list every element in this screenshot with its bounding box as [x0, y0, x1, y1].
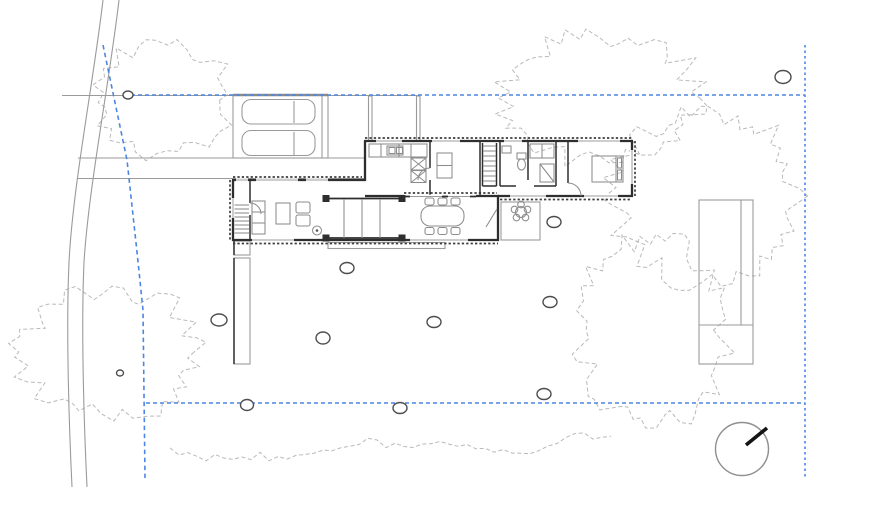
door-swing-bedroom — [568, 183, 581, 196]
kitchen-sink-bowl-1 — [389, 148, 395, 154]
tree-canopy-east-lower — [572, 233, 734, 428]
garden-wall — [234, 258, 250, 364]
tree-marker-2 — [775, 71, 791, 84]
armchair-2 — [296, 215, 310, 226]
bed-pillow-2 — [618, 170, 622, 180]
car-2 — [242, 131, 315, 156]
site-plan-drawing — [0, 0, 882, 526]
dining-chair-2 — [438, 198, 447, 205]
dining-table — [421, 206, 464, 226]
bed — [592, 156, 623, 182]
deck-post-se — [399, 235, 406, 242]
dining-chair-5 — [438, 228, 447, 235]
patio-door-leaf — [486, 209, 497, 227]
tree-canopy-north — [494, 29, 707, 167]
tree-line-south — [170, 433, 611, 461]
north-arrow-needle — [746, 428, 767, 445]
tree-marker-10 — [393, 403, 407, 414]
fireplace-flue — [316, 229, 319, 232]
deck-post-nw — [323, 195, 330, 202]
patio-chair-2 — [524, 206, 531, 213]
dining-chair-6 — [451, 228, 460, 235]
dining-chair-1 — [425, 198, 434, 205]
trellis-post-east — [417, 96, 421, 141]
coffee-table — [276, 203, 290, 224]
deck-post-ne — [399, 195, 406, 202]
toilet-tank — [517, 153, 526, 159]
tree-marker-12 — [117, 370, 124, 376]
car-1 — [242, 100, 315, 125]
site-plan-viewport — [0, 0, 882, 526]
tree-marker-11 — [537, 389, 551, 400]
dining-chair-3 — [451, 198, 460, 205]
tree-marker-8 — [547, 217, 561, 228]
tree-canopy-east-upper — [602, 106, 807, 290]
sofa — [252, 201, 265, 234]
road-edge-inner — [83, 0, 119, 487]
armchair-1 — [296, 202, 310, 213]
tree-marker-5 — [316, 332, 330, 344]
patio-chair-5 — [511, 206, 518, 213]
tree-marker-6 — [427, 317, 441, 328]
north-arrow-circle — [716, 423, 769, 476]
shower-diag — [540, 164, 554, 182]
toilet-bowl — [518, 159, 526, 170]
trellis-post-west — [369, 96, 373, 141]
dining-chair-4 — [425, 228, 434, 235]
tree-marker-7 — [543, 297, 557, 308]
tree-marker-3 — [340, 263, 354, 274]
tree-marker-1 — [123, 91, 133, 99]
tree-canopy-southwest — [9, 286, 206, 421]
tree-marker-9 — [241, 400, 254, 411]
bath-sink — [502, 146, 511, 153]
garden-structure — [699, 200, 753, 364]
tree-marker-4 — [211, 314, 227, 326]
boundary-west — [103, 45, 145, 478]
deck-post-sw — [323, 235, 330, 242]
